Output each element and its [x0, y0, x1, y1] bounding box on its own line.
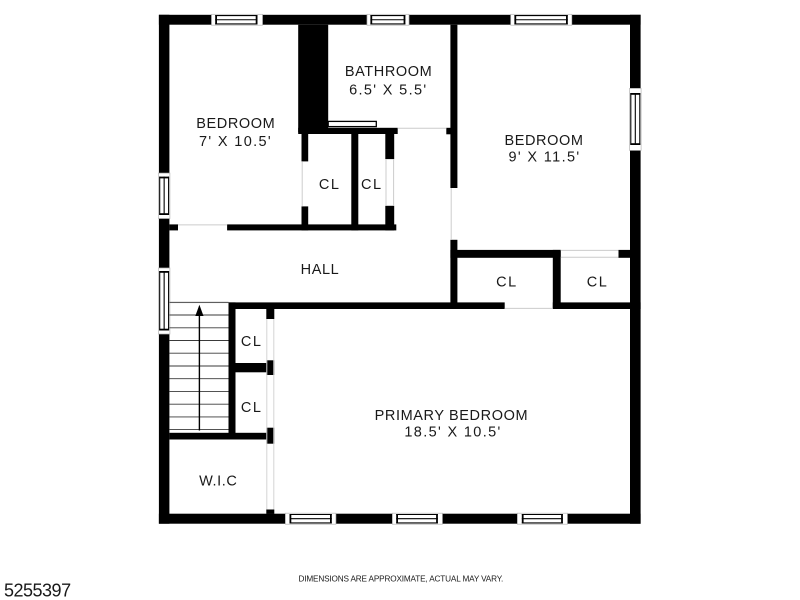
svg-text:CL: CL	[319, 177, 341, 193]
svg-text:6.5' X 5.5': 6.5' X 5.5'	[349, 82, 427, 98]
svg-text:CL: CL	[587, 275, 609, 291]
svg-text:BATHROOM: BATHROOM	[345, 64, 433, 80]
svg-text:W.I.C: W.I.C	[199, 474, 237, 490]
svg-text:7' X 10.5': 7' X 10.5'	[199, 134, 272, 150]
svg-text:BEDROOM: BEDROOM	[504, 133, 583, 149]
svg-text:CL: CL	[496, 275, 518, 291]
svg-text:DIMENSIONS ARE APPROXIMATE, AC: DIMENSIONS ARE APPROXIMATE, ACTUAL MAY V…	[298, 574, 503, 583]
svg-text:5255397: 5255397	[4, 581, 71, 600]
svg-text:9' X 11.5': 9' X 11.5'	[509, 150, 581, 166]
svg-text:HALL: HALL	[301, 262, 340, 278]
svg-text:CL: CL	[241, 400, 263, 416]
svg-text:CL: CL	[241, 334, 263, 350]
svg-text:PRIMARY BEDROOM: PRIMARY BEDROOM	[375, 408, 529, 424]
svg-text:CL: CL	[361, 177, 383, 193]
svg-text:18.5' X 10.5': 18.5' X 10.5'	[404, 425, 501, 441]
svg-text:BEDROOM: BEDROOM	[196, 116, 275, 132]
